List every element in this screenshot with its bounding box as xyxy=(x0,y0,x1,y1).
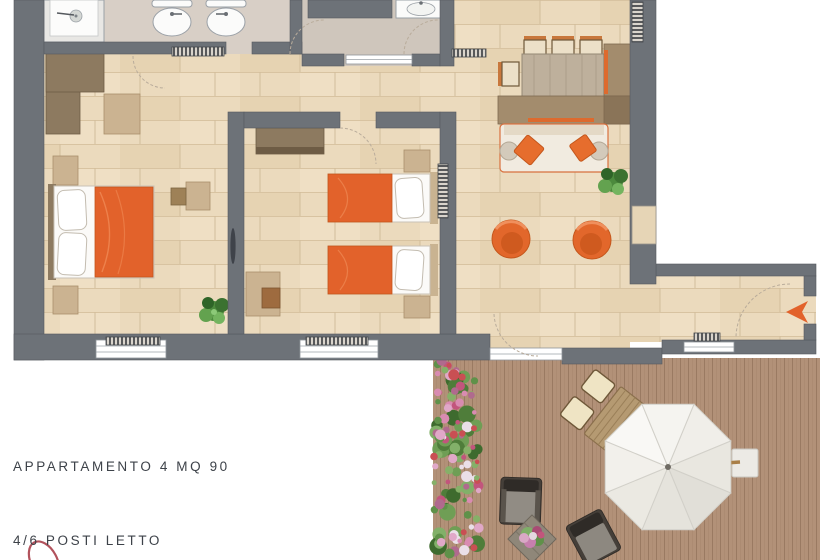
armchair xyxy=(573,221,611,259)
plant xyxy=(598,168,628,195)
nightstand xyxy=(53,286,78,314)
nightstand xyxy=(53,156,78,185)
armchair xyxy=(492,220,530,258)
wardrobe xyxy=(104,94,140,134)
dining-table xyxy=(522,54,606,100)
nightstand xyxy=(404,296,430,318)
mirror xyxy=(230,228,235,264)
nightstand xyxy=(404,150,430,172)
bidet xyxy=(206,0,246,36)
single-bed xyxy=(328,244,438,296)
wardrobe xyxy=(46,52,104,92)
hallway-floor xyxy=(630,276,816,342)
info-line-apartment: APPARTAMENTO 4 MQ 90 xyxy=(13,455,230,480)
toilet xyxy=(152,0,192,36)
dining-chair xyxy=(502,62,519,86)
sofa xyxy=(500,124,608,172)
apartment xyxy=(14,0,816,364)
shower xyxy=(44,0,104,42)
parasol xyxy=(605,404,731,530)
double-bed xyxy=(48,184,154,280)
wall-niche xyxy=(632,206,656,244)
desk xyxy=(246,272,280,316)
shaft xyxy=(308,0,392,18)
terrace xyxy=(429,356,820,560)
single-bed xyxy=(328,172,438,224)
wardrobe-front xyxy=(256,147,324,154)
washbasin xyxy=(396,0,446,18)
plant xyxy=(199,297,229,324)
info-block: APPARTAMENTO 4 MQ 90 4/6 POSTI LETTO TRI… xyxy=(13,406,230,560)
info-line-beds: 4/6 POSTI LETTO xyxy=(13,529,230,554)
floorplan-page: APPARTAMENTO 4 MQ 90 4/6 POSTI LETTO TRI… xyxy=(0,0,820,560)
